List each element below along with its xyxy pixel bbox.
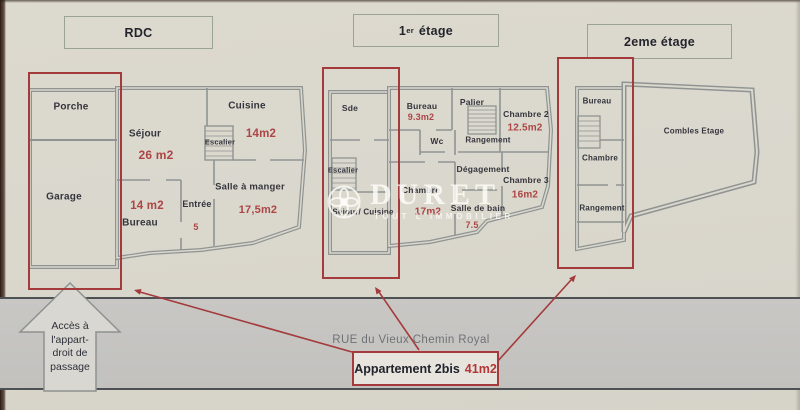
header-rdc: RDC [64, 16, 213, 49]
highlight-box-etage1 [322, 67, 400, 279]
room-area-sejour: 26 m2 [138, 148, 173, 162]
highlight-box-rdc [28, 72, 122, 290]
room-area-salle-a-manger: 17,5m2 [239, 204, 278, 216]
room-label-salle-a-manger: Salle à manger [215, 182, 285, 193]
room-label-chambre2: Chambre 2 [503, 109, 549, 119]
access-line-2: l'appart- [50, 334, 90, 348]
room-label-entree: Entrée [182, 199, 211, 209]
duret-logo-icon [326, 184, 362, 220]
etage1-palier-stairs-icon [468, 106, 496, 134]
room-label-rangement-e1: Rangement [465, 136, 510, 145]
header-etage1: 1er étage [353, 14, 499, 47]
room-label-bureau-e1: Bureau [407, 101, 438, 111]
room-area-cuisine: 14m2 [246, 128, 276, 140]
header-etage1-rest: étage [415, 24, 453, 38]
pointer-arrows [134, 275, 576, 362]
room-label-sejour: Séjour [129, 129, 161, 140]
street-name: RUE du Vieux Chemin Royal [332, 334, 489, 346]
apartment-box: Appartement 2bis 41m2 [352, 351, 499, 386]
highlight-box-etage2 [557, 57, 634, 269]
apartment-label: Appartement 2bis [354, 362, 460, 376]
pointer-arrow-etage2 [497, 280, 571, 362]
room-area-entree: 5 [193, 222, 198, 232]
header-rdc-label: RDC [125, 26, 153, 40]
room-label-cuisine: Cuisine [228, 101, 266, 112]
access-line-3: droit de [50, 347, 90, 361]
room-area-chambre3: 16m2 [512, 190, 538, 201]
apartment-area: 41m2 [465, 362, 497, 376]
room-label-palier: Palier [460, 97, 484, 107]
access-line-4: passage [50, 361, 90, 375]
room-label-escalier-rdc: Escalier [205, 138, 235, 147]
room-label-combles: Combles Etage [664, 127, 724, 136]
header-etage2: 2eme étage [587, 24, 732, 59]
room-area-bureau-rdc: 14 m2 [130, 200, 164, 212]
floorplan-document: RDC 1er étage 2eme étage Porche Séjour 2… [0, 0, 800, 410]
watermark-tagline: TOUT L'IMMOBILIER [374, 212, 514, 221]
room-label-wc: Wc [430, 136, 443, 146]
room-label-bureau-rdc: Bureau [122, 218, 158, 229]
header-etage2-label: 2eme étage [624, 35, 695, 49]
room-label-degagement: Dégagement [456, 164, 509, 174]
header-etage1-sup: er [406, 26, 414, 35]
header-etage1-prefix: 1 [399, 24, 406, 38]
room-area-chambre2: 12.5m2 [507, 123, 542, 134]
room-area-bureau-e1: 9.3m2 [408, 112, 435, 122]
watermark-brand: DURET [370, 178, 500, 212]
pointer-arrowhead-rdc [134, 289, 142, 295]
access-line-1: Accès à [50, 320, 90, 334]
room-area-salle-de-bain: 7.5 [465, 220, 478, 230]
room-label-chambre3: Chambre 3 [503, 175, 549, 185]
pointer-arrow-rdc [140, 292, 352, 352]
access-arrow-caption: Accès à l'appart- droit de passage [50, 320, 90, 374]
